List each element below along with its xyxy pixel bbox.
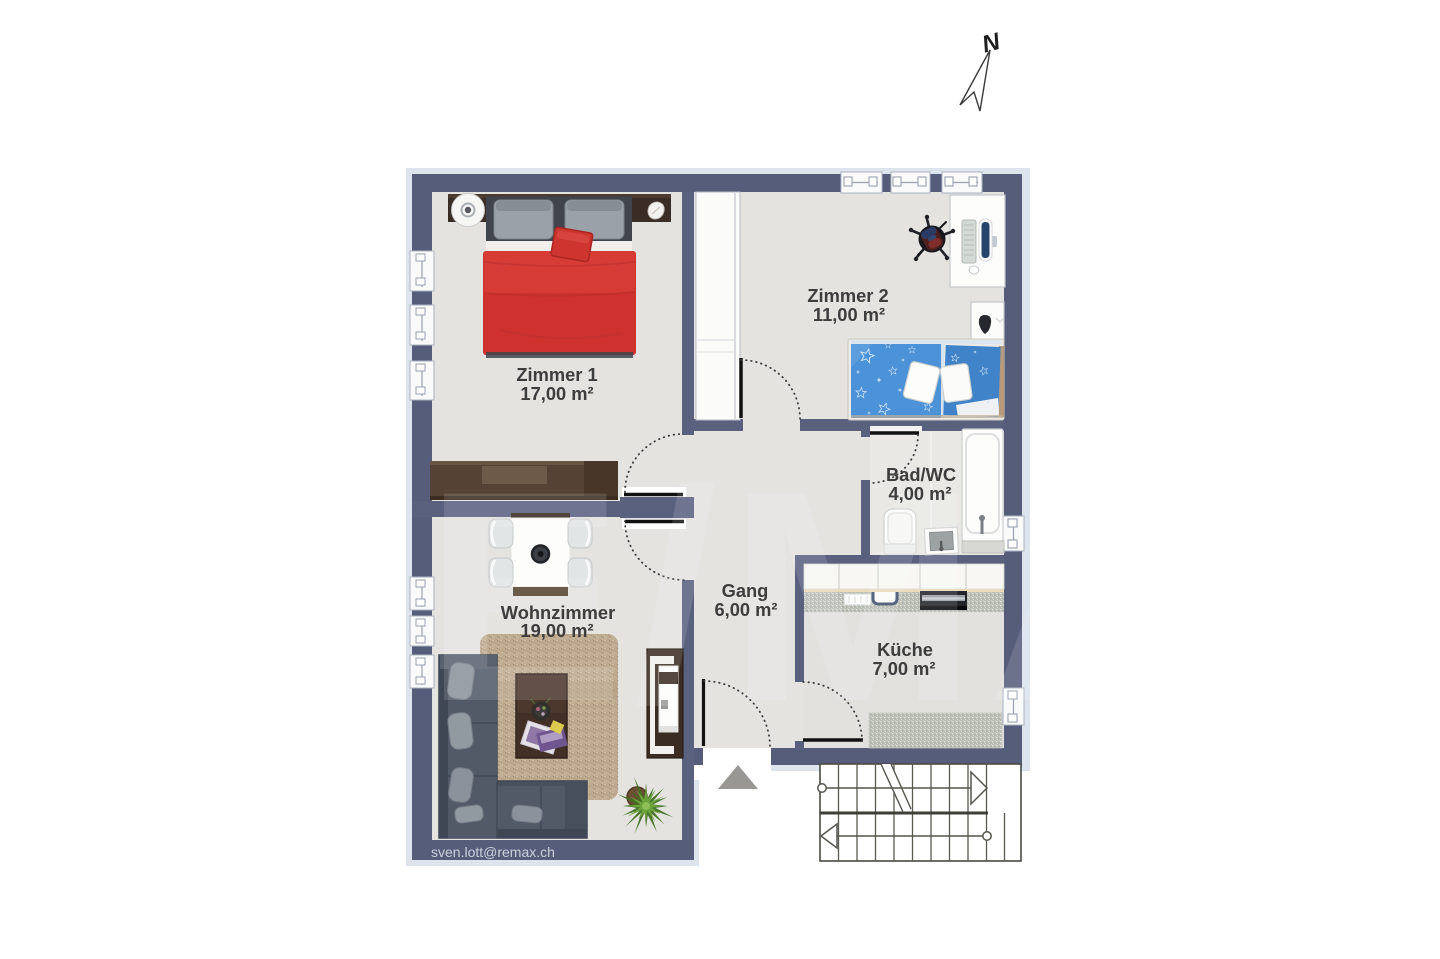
svg-text:Bad/WC: Bad/WC <box>886 464 956 485</box>
svg-text:19,00 m²: 19,00 m² <box>520 620 593 641</box>
svg-text:sven.lott@remax.ch: sven.lott@remax.ch <box>431 844 555 860</box>
svg-text:11,00 m²: 11,00 m² <box>813 304 885 325</box>
svg-text:17,00 m²: 17,00 m² <box>520 383 593 404</box>
svg-text:E/MA: E/MA <box>424 428 1214 764</box>
svg-text:Zimmer 2: Zimmer 2 <box>807 285 888 306</box>
svg-text:7,00 m²: 7,00 m² <box>872 658 935 679</box>
svg-text:4,00 m²: 4,00 m² <box>888 483 951 504</box>
svg-text:Zimmer 1: Zimmer 1 <box>516 364 597 385</box>
svg-text:Küche: Küche <box>877 639 933 660</box>
svg-text:6,00 m²: 6,00 m² <box>714 599 777 620</box>
svg-text:Gang: Gang <box>722 580 769 601</box>
